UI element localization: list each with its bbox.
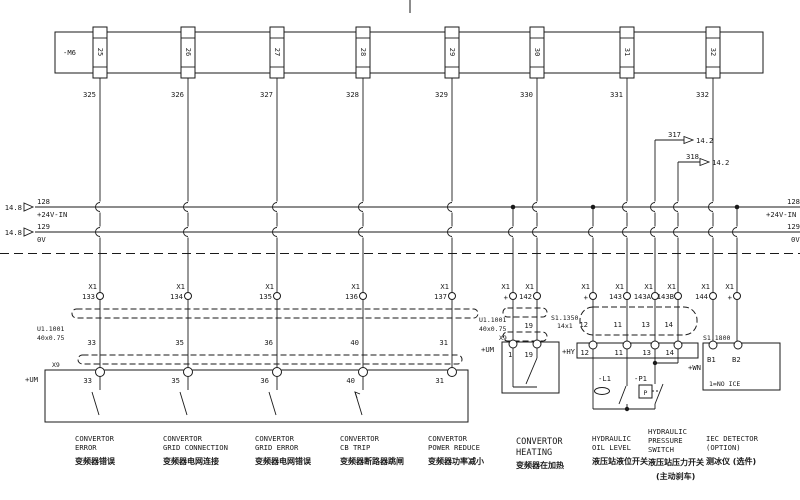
svg-text:S1.1800: S1.1800 <box>703 334 730 342</box>
svg-text:329: 329 <box>435 90 448 99</box>
svg-text:OIL LEVEL: OIL LEVEL <box>592 443 631 452</box>
svg-text:CONVERTOR: CONVERTOR <box>340 434 380 443</box>
caption-heating: CONVERTOR HEATING 变频器在加热 <box>516 437 564 470</box>
schematic-canvas: -M6 25 26 27 28 29 30 31 <box>0 0 800 500</box>
svg-text:14.2: 14.2 <box>696 136 713 145</box>
svg-text:CONVERTOR: CONVERTOR <box>255 434 295 443</box>
svg-text:40: 40 <box>346 376 355 385</box>
svg-text:142: 142 <box>519 292 532 301</box>
svg-text:35: 35 <box>171 376 180 385</box>
svg-text:14: 14 <box>664 320 673 329</box>
svg-text:变频器功率减小: 变频器功率减小 <box>428 456 484 466</box>
svg-text:HYDRAULIC: HYDRAULIC <box>648 427 687 436</box>
svg-text:变频器错误: 变频器错误 <box>75 456 116 466</box>
svg-text:+: + <box>728 293 733 302</box>
svg-text:(OPTION): (OPTION) <box>706 443 741 452</box>
svg-text:13: 13 <box>641 320 650 329</box>
svg-text:SWITCH: SWITCH <box>648 445 674 454</box>
svg-text:326: 326 <box>171 90 184 99</box>
svg-text:(主动刹车): (主动刹车) <box>656 471 695 481</box>
svg-text:X1: X1 <box>644 282 653 291</box>
caption-pressure-switch: HYDRAULIC PRESSURE SWITCH 液压站压力开关 (主动刹车) <box>648 427 704 481</box>
svg-text:CONVERTOR: CONVERTOR <box>163 434 203 443</box>
svg-text:CONVERTOR: CONVERTOR <box>428 434 468 443</box>
svg-text:14: 14 <box>665 348 674 357</box>
svg-text:X1: X1 <box>265 282 274 291</box>
svg-text:X1: X1 <box>701 282 710 291</box>
svg-text:19: 19 <box>524 321 533 330</box>
svg-text:11: 11 <box>614 348 623 357</box>
svg-text:U1.1001: U1.1001 <box>37 325 64 333</box>
svg-text:X9: X9 <box>52 361 60 369</box>
svg-text:12: 12 <box>579 320 588 329</box>
svg-text:+24V-IN: +24V-IN <box>766 210 796 219</box>
svg-text:+UM: +UM <box>25 375 39 384</box>
svg-text:13: 13 <box>642 348 651 357</box>
svg-text:31: 31 <box>435 376 444 385</box>
svg-text:327: 327 <box>260 90 273 99</box>
terminal: 29 <box>445 27 459 78</box>
caption-grid-connection: CONVERTOR GRID CONNECTION 变频器电网连接 <box>163 434 228 466</box>
svg-text:-L1: -L1 <box>598 374 611 383</box>
svg-text:变频器断路器跳闸: 变频器断路器跳闸 <box>340 456 404 466</box>
svg-text:CB TRIP: CB TRIP <box>340 443 370 452</box>
svg-text:32: 32 <box>709 48 717 56</box>
x1-pin-row: X1133 X1134 X1135 X1136 X1137 X1+ X1142 … <box>82 282 740 302</box>
svg-text:143A: 143A <box>634 292 652 301</box>
svg-text:X9: X9 <box>499 334 507 342</box>
svg-text:137: 137 <box>434 292 447 301</box>
svg-text:129: 129 <box>787 222 800 231</box>
caption-convertor-error: CONVERTOR ERROR 变频器错误 <box>75 434 116 466</box>
svg-text:GRID CONNECTION: GRID CONNECTION <box>163 443 228 452</box>
svg-text:X1: X1 <box>88 282 97 291</box>
svg-text:40x0.75: 40x0.75 <box>479 325 506 333</box>
iec-section: S1.1800 +WN B1 B2 1=NO ICE <box>688 334 780 390</box>
svg-text:HYDRAULIC: HYDRAULIC <box>592 434 631 443</box>
terminal: 32 <box>706 27 720 78</box>
caption-grid-error: CONVERTOR GRID ERROR 变频器电网错误 <box>255 434 312 466</box>
sheet-ref: 14.8 <box>5 203 22 212</box>
contact-switch-icon <box>92 377 363 415</box>
svg-text:144: 144 <box>695 292 708 301</box>
svg-text:31: 31 <box>439 338 448 347</box>
x9-box-left: X9 +UM 33 35 36 40 31 <box>25 361 468 422</box>
svg-text:X1: X1 <box>351 282 360 291</box>
svg-text:40: 40 <box>350 338 359 347</box>
svg-text:29: 29 <box>448 48 456 56</box>
svg-text:X1: X1 <box>440 282 449 291</box>
svg-text:+: + <box>504 293 509 302</box>
svg-text:30: 30 <box>533 48 541 56</box>
caption-cb-trip: CONVERTOR CB TRIP 变频器断路器跳闸 <box>340 434 404 466</box>
svg-text:X1: X1 <box>615 282 624 291</box>
ref-arrow-icon <box>700 159 709 166</box>
svg-text:136: 136 <box>345 292 358 301</box>
svg-text:134: 134 <box>170 292 183 301</box>
terminal: 31 <box>620 27 634 78</box>
svg-text:143: 143 <box>609 292 622 301</box>
svg-text:B2: B2 <box>732 355 741 364</box>
svg-text:31: 31 <box>623 48 631 56</box>
svg-text:325: 325 <box>83 90 96 99</box>
caption-iec-detector: IEC DETECTOR (OPTION) 测冰仪 (选件) <box>706 434 759 466</box>
svg-text:317: 317 <box>668 130 681 139</box>
terminal-strip-label: -M6 <box>63 48 76 57</box>
svg-text:+HY: +HY <box>562 347 576 356</box>
svg-text:B1: B1 <box>707 355 716 364</box>
svg-text:25: 25 <box>96 48 104 56</box>
float-icon <box>595 388 610 395</box>
sheet-ref: 14.8 <box>5 228 22 237</box>
svg-text:143B: 143B <box>657 292 674 301</box>
svg-text:318: 318 <box>686 152 699 161</box>
svg-text:128: 128 <box>787 197 800 206</box>
svg-text:1: 1 <box>508 350 512 359</box>
svg-text:液压站液位开关: 液压站液位开关 <box>592 456 648 466</box>
ref-arrow-icon <box>24 203 33 211</box>
svg-text:变频器电网错误: 变频器电网错误 <box>255 456 312 466</box>
svg-text:液压站压力开关: 液压站压力开关 <box>648 457 704 467</box>
terminal-strip: -M6 25 26 27 28 29 30 31 <box>55 27 763 78</box>
svg-text:U1.1001: U1.1001 <box>479 316 506 324</box>
svg-text:CONVERTOR: CONVERTOR <box>75 434 115 443</box>
svg-text:129: 129 <box>37 222 50 231</box>
svg-text:X1: X1 <box>667 282 676 291</box>
svg-text:PRESSURE: PRESSURE <box>648 436 683 445</box>
ref-arrow-icon <box>684 137 693 144</box>
svg-text:-P1: -P1 <box>634 374 647 383</box>
ref-arrow-icon <box>24 228 33 236</box>
svg-text:CONVERTOR: CONVERTOR <box>516 437 563 447</box>
svg-text:27: 27 <box>273 48 281 56</box>
svg-text:332: 332 <box>696 90 709 99</box>
svg-text:+: + <box>584 293 589 302</box>
svg-text:S1.1350: S1.1350 <box>551 314 578 322</box>
svg-text:0V: 0V <box>791 235 800 244</box>
svg-text:变频器在加热: 变频器在加热 <box>516 460 564 470</box>
svg-text:330: 330 <box>520 90 533 99</box>
svg-text:26: 26 <box>184 48 192 56</box>
svg-text:IEC DETECTOR: IEC DETECTOR <box>706 434 759 443</box>
svg-text:12: 12 <box>580 348 589 357</box>
svg-text:X1: X1 <box>725 282 734 291</box>
svg-text:33: 33 <box>83 376 92 385</box>
svg-text:HEATING: HEATING <box>516 448 552 458</box>
top-wire-labels: 325 326 327 328 329 330 331 332 <box>83 90 709 99</box>
svg-text:33: 33 <box>87 338 96 347</box>
svg-text:331: 331 <box>610 90 623 99</box>
crossref-318: 318 14.2 <box>678 152 729 167</box>
caption-power-reduce: CONVERTOR POWER REDUCE 变频器功率减小 <box>428 434 484 466</box>
svg-text:40x0.75: 40x0.75 <box>37 334 64 342</box>
terminal: 25 <box>93 27 107 78</box>
cable-left: U1.1001 40x0.75 33 35 36 40 31 <box>37 309 478 364</box>
terminal: 27 <box>270 27 284 78</box>
svg-text:14.2: 14.2 <box>712 158 729 167</box>
svg-text:14x1: 14x1 <box>557 322 573 330</box>
svg-text:测冰仪 (选件): 测冰仪 (选件) <box>706 456 756 466</box>
svg-text:35: 35 <box>175 338 184 347</box>
svg-text:0V: 0V <box>37 235 46 244</box>
svg-text:ERROR: ERROR <box>75 443 97 452</box>
svg-text:328: 328 <box>346 90 359 99</box>
hydraulic-section: S1.1350 14x1 12 11 13 14 +HY 12 11 13 14… <box>551 307 698 411</box>
svg-text:X1: X1 <box>525 282 534 291</box>
svg-text:+UM: +UM <box>481 345 495 354</box>
svg-text:GRID ERROR: GRID ERROR <box>255 443 299 452</box>
svg-text:135: 135 <box>259 292 272 301</box>
svg-text:X1: X1 <box>581 282 590 291</box>
svg-text:POWER REDUCE: POWER REDUCE <box>428 443 480 452</box>
svg-text:11: 11 <box>613 320 622 329</box>
terminal: 26 <box>181 27 195 78</box>
svg-text:1=NO ICE: 1=NO ICE <box>709 380 740 388</box>
captions: CONVERTOR ERROR 变频器错误 CONVERTOR GRID CON… <box>75 427 759 481</box>
svg-text:133: 133 <box>82 292 95 301</box>
crossref-317: 317 14.2 <box>655 130 713 145</box>
svg-text:128: 128 <box>37 197 50 206</box>
svg-text:19: 19 <box>524 350 533 359</box>
svg-text:X1: X1 <box>501 282 510 291</box>
svg-text:+24V-IN: +24V-IN <box>37 210 67 219</box>
svg-text:变频器电网连接: 变频器电网连接 <box>163 456 219 466</box>
svg-text:36: 36 <box>260 376 269 385</box>
heating-section: U1.1001 40x0.75 19 X9 +UM 1 19 <box>479 308 559 393</box>
caption-oil-level: HYDRAULIC OIL LEVEL 液压站液位开关 <box>592 434 648 466</box>
svg-text:28: 28 <box>359 48 367 56</box>
svg-text:X1: X1 <box>176 282 185 291</box>
svg-text:P: P <box>644 389 648 397</box>
terminal: 28 <box>356 27 370 78</box>
svg-text:+WN: +WN <box>688 363 701 372</box>
svg-text:36: 36 <box>264 338 273 347</box>
terminal: 30 <box>530 27 544 78</box>
